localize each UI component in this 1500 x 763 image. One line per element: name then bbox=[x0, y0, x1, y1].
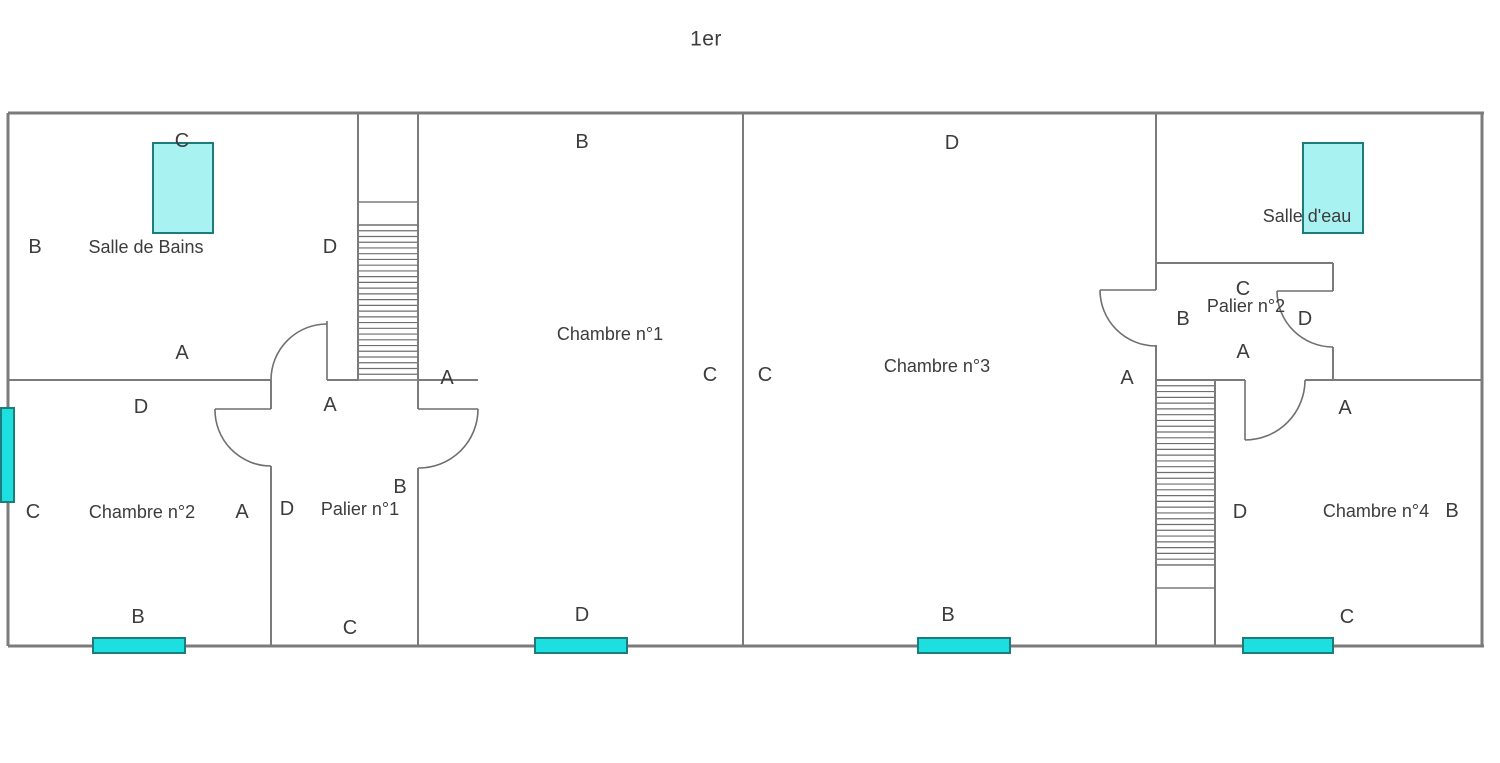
room-label: Palier n°2 bbox=[1207, 296, 1285, 316]
wall-letter: B bbox=[1445, 500, 1458, 522]
floor-plan-svg: 1er BDCBDAAABDCADCCACBDAADBBCDBCSalle de… bbox=[0, 0, 1500, 763]
wall-letter: D bbox=[575, 604, 589, 626]
wall-letter: C bbox=[1340, 606, 1354, 628]
door-swing-arc bbox=[418, 409, 478, 468]
wall-letter: D bbox=[134, 396, 148, 418]
room-label: Salle de Bains bbox=[88, 237, 203, 257]
window bbox=[1, 408, 14, 502]
door-swing-arc bbox=[1245, 380, 1305, 440]
wall-letter: C bbox=[26, 501, 40, 523]
room-label: Salle d'eau bbox=[1263, 206, 1352, 226]
wall-letter: A bbox=[175, 342, 189, 364]
wall-letter: A bbox=[323, 394, 337, 416]
wall-letter: D bbox=[1298, 308, 1312, 330]
window bbox=[93, 638, 185, 653]
wall-letter: C bbox=[175, 130, 189, 152]
wall-letter: A bbox=[1120, 367, 1134, 389]
wall-letter: D bbox=[323, 236, 337, 258]
wall-letter: A bbox=[1338, 397, 1352, 419]
wall-letter: C bbox=[703, 364, 717, 386]
wall-letter: B bbox=[575, 131, 588, 153]
room-label: Palier n°1 bbox=[321, 499, 399, 519]
plan-generated: BDCBDAAABDCADCCACBDAADBBCDBCSalle de Bai… bbox=[1, 113, 1484, 653]
wall-letter: D bbox=[945, 132, 959, 154]
wall-letter: B bbox=[393, 476, 406, 498]
door-swing-arc bbox=[215, 409, 271, 466]
floor-title: 1er bbox=[690, 28, 722, 51]
window bbox=[535, 638, 627, 653]
room-label: Chambre n°2 bbox=[89, 502, 195, 522]
door-swing-arc bbox=[271, 324, 327, 380]
wall-letter: B bbox=[131, 606, 144, 628]
window bbox=[918, 638, 1010, 653]
room-label: Chambre n°3 bbox=[884, 356, 990, 376]
floor-plan-page: 1er BDCBDAAABDCADCCACBDAADBBCDBCSalle de… bbox=[0, 0, 1500, 763]
wall-letter: B bbox=[941, 604, 954, 626]
wall-letter: C bbox=[758, 364, 772, 386]
wall-letter: A bbox=[440, 367, 454, 389]
wall-letter: B bbox=[28, 236, 41, 258]
room-label: Chambre n°1 bbox=[557, 324, 663, 344]
door-swing-arc bbox=[1100, 290, 1156, 346]
window bbox=[1243, 638, 1333, 653]
wall-letter: B bbox=[1176, 308, 1189, 330]
wall-letter: D bbox=[280, 498, 294, 520]
wall-letter: A bbox=[235, 501, 249, 523]
room-label: Chambre n°4 bbox=[1323, 501, 1429, 521]
wall-letter: A bbox=[1236, 341, 1250, 363]
wall-letter: D bbox=[1233, 501, 1247, 523]
window bbox=[153, 143, 213, 233]
wall-letter: C bbox=[343, 617, 357, 639]
